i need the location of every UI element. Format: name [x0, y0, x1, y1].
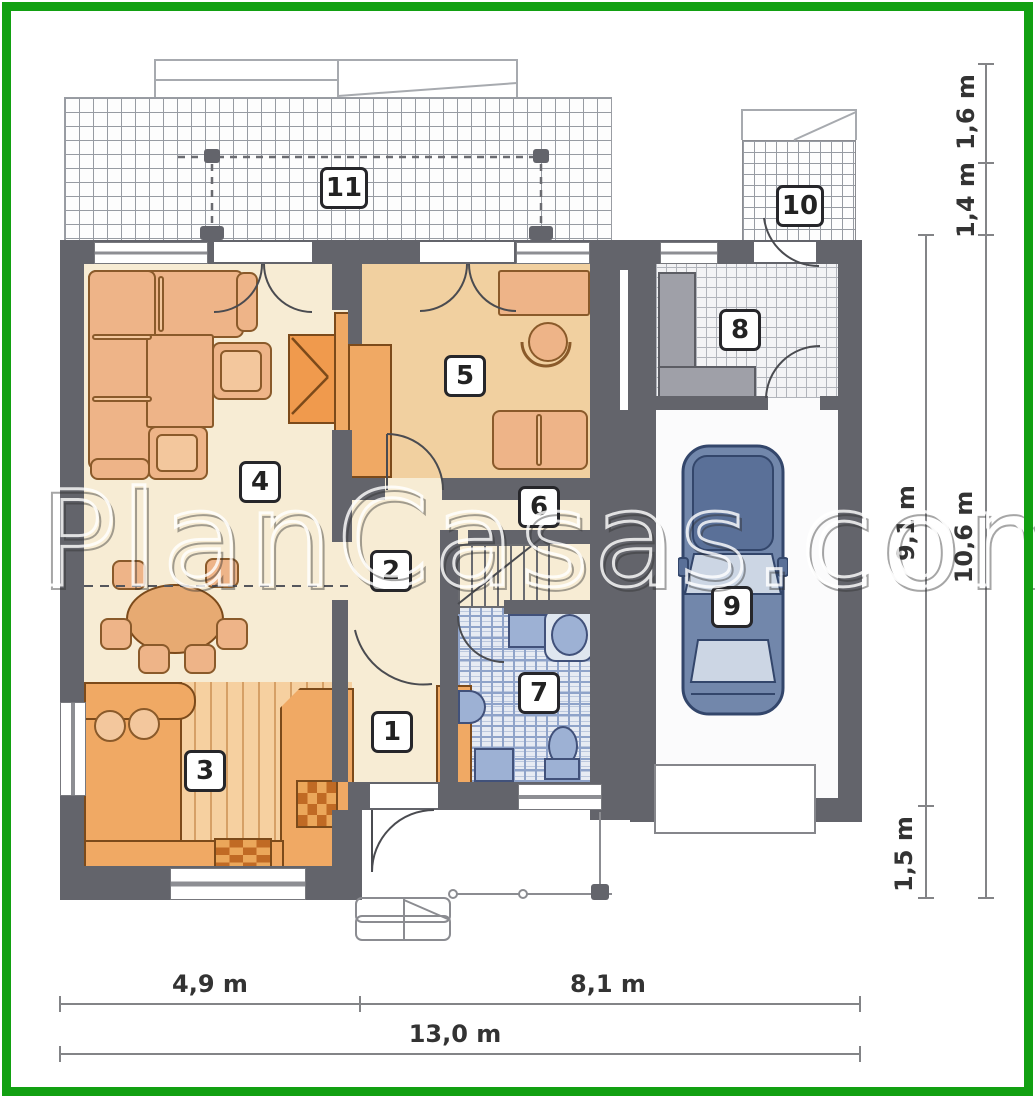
wall-kitchen-vestibule [332, 600, 348, 782]
dim-right-lower: 1,4 m [952, 162, 980, 238]
cushion-divider [536, 414, 542, 466]
window-living [94, 242, 208, 264]
room-label-terrace: 11 [320, 167, 368, 209]
room-label-vestibule: 1 [371, 711, 413, 753]
wall-utility-south [820, 396, 838, 410]
dining-chair [216, 618, 248, 650]
room-label-bathroom: 7 [518, 672, 560, 714]
toilet-tank [544, 758, 580, 780]
dining-chair [184, 644, 216, 674]
terrace-door-opening [214, 242, 312, 262]
window-room5 [516, 242, 590, 264]
window-kitchen-south [170, 868, 306, 900]
window-utility [660, 242, 718, 264]
dim-bottom-total: 13,0 m [409, 1020, 502, 1048]
room-label-utility: 8 [719, 309, 761, 351]
armchair-seat [220, 350, 262, 392]
dim-bottom-left: 4,9 m [172, 970, 248, 998]
sink-bowl [94, 710, 126, 742]
dim-bottom-right: 8,1 m [570, 970, 646, 998]
coffee-table [146, 334, 214, 428]
desk-chair [528, 322, 568, 362]
front-door-opening [370, 784, 438, 808]
desk [498, 270, 590, 316]
porch-door-opening [754, 242, 816, 262]
wardrobe [348, 344, 392, 478]
fireplace-icon [288, 334, 336, 424]
room5-terrace-door-opening [420, 242, 514, 262]
sink-bowl [128, 708, 160, 740]
window-kitchen-west [60, 702, 86, 796]
room-label-porch: 10 [776, 185, 824, 227]
sofa-armrest [236, 272, 258, 332]
wall-utility-south [656, 396, 768, 410]
cushion-divider [158, 276, 164, 332]
garage-door [654, 764, 816, 834]
wall-corner-block [332, 810, 362, 900]
room-label-study: 5 [444, 355, 486, 397]
dining-chair [100, 618, 132, 650]
cushion-divider [92, 396, 152, 402]
wall-room5-west [348, 264, 362, 344]
floor-plan-page: 1 2 3 4 5 6 7 8 9 10 11 4,9 m 8,1 m 13,0… [0, 0, 1035, 1098]
porch-outline [356, 812, 612, 940]
cushion-divider [92, 334, 152, 340]
room-label-kitchen: 3 [184, 750, 226, 792]
dim-right-porch: 1,5 m [890, 816, 918, 892]
dim-right-upper: 1,6 m [952, 74, 980, 150]
bath-cabinet [474, 748, 514, 782]
dining-chair [138, 644, 170, 674]
wall-seam [620, 270, 628, 410]
boiler-counter [658, 272, 696, 380]
window-bathroom [518, 784, 602, 810]
watermark-text: PlanCasas.com [36, 468, 1035, 613]
